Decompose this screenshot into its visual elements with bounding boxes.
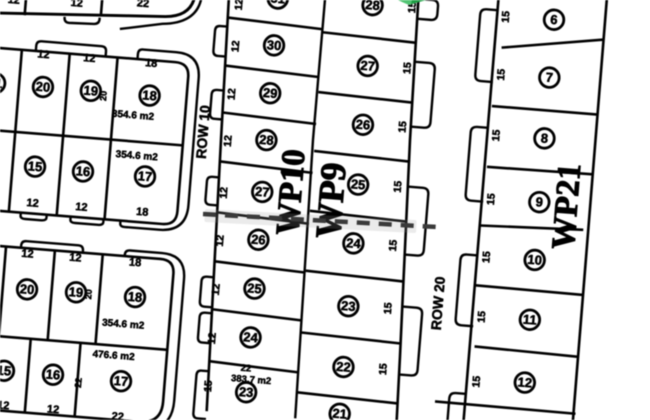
svg-text:19: 19 xyxy=(68,284,84,300)
svg-text:12: 12 xyxy=(210,283,223,296)
svg-text:24: 24 xyxy=(243,329,259,345)
svg-text:15: 15 xyxy=(377,363,390,376)
svg-text:12: 12 xyxy=(229,40,242,53)
svg-text:17: 17 xyxy=(137,168,153,184)
svg-text:23: 23 xyxy=(238,384,254,400)
svg-text:15: 15 xyxy=(387,239,400,252)
svg-text:WP21: WP21 xyxy=(546,162,589,251)
svg-text:29: 29 xyxy=(262,85,278,101)
svg-text:30: 30 xyxy=(266,37,282,53)
svg-text:12: 12 xyxy=(69,252,82,265)
svg-text:18: 18 xyxy=(142,87,158,103)
svg-text:15: 15 xyxy=(500,10,513,23)
svg-text:8: 8 xyxy=(540,130,548,146)
svg-text:7: 7 xyxy=(545,70,553,86)
svg-text:12: 12 xyxy=(26,197,39,210)
svg-text:15: 15 xyxy=(480,251,493,264)
svg-text:26: 26 xyxy=(251,231,267,247)
svg-text:12: 12 xyxy=(47,403,60,416)
svg-text:25: 25 xyxy=(247,280,263,296)
svg-text:18: 18 xyxy=(129,256,142,269)
svg-text:10: 10 xyxy=(527,252,543,268)
svg-text:18: 18 xyxy=(145,57,158,70)
svg-text:27: 27 xyxy=(254,184,270,200)
svg-text:16: 16 xyxy=(75,163,91,179)
svg-text:20: 20 xyxy=(98,90,109,101)
svg-text:12: 12 xyxy=(75,201,88,214)
svg-text:15: 15 xyxy=(392,180,405,193)
svg-text:26: 26 xyxy=(355,117,371,133)
svg-text:20: 20 xyxy=(35,79,51,95)
svg-text:15: 15 xyxy=(475,310,488,323)
svg-text:12: 12 xyxy=(214,234,227,247)
svg-text:22: 22 xyxy=(336,359,352,375)
svg-text:15: 15 xyxy=(485,193,498,206)
svg-text:15: 15 xyxy=(495,68,508,81)
svg-text:22: 22 xyxy=(111,411,124,420)
svg-text:12: 12 xyxy=(233,0,246,11)
svg-text:24: 24 xyxy=(346,235,362,251)
svg-text:12: 12 xyxy=(7,0,20,7)
svg-text:12: 12 xyxy=(222,135,235,148)
svg-text:12: 12 xyxy=(218,186,231,199)
svg-text:23: 23 xyxy=(341,298,357,314)
svg-text:25: 25 xyxy=(350,176,366,192)
svg-text:12: 12 xyxy=(0,399,10,412)
svg-text:15: 15 xyxy=(202,380,215,393)
svg-text:17: 17 xyxy=(113,373,129,389)
svg-text:22: 22 xyxy=(136,0,149,10)
svg-text:12: 12 xyxy=(37,48,50,61)
svg-text:21: 21 xyxy=(332,406,348,420)
svg-text:16: 16 xyxy=(45,366,61,382)
svg-text:28: 28 xyxy=(259,132,275,148)
svg-text:15: 15 xyxy=(490,129,503,142)
svg-text:15: 15 xyxy=(382,302,395,315)
svg-text:12: 12 xyxy=(226,88,239,101)
svg-text:27: 27 xyxy=(360,58,376,74)
svg-text:28: 28 xyxy=(365,0,381,13)
svg-text:11: 11 xyxy=(522,312,537,328)
svg-text:20: 20 xyxy=(83,289,94,300)
svg-text:12: 12 xyxy=(83,52,96,65)
svg-text:15: 15 xyxy=(396,121,409,134)
svg-text:9: 9 xyxy=(535,194,543,210)
svg-text:15: 15 xyxy=(401,62,414,75)
svg-text:22: 22 xyxy=(240,363,251,375)
svg-text:12: 12 xyxy=(517,374,533,390)
svg-text:15: 15 xyxy=(470,375,483,388)
svg-text:18: 18 xyxy=(136,206,149,219)
svg-text:20: 20 xyxy=(19,281,35,297)
svg-text:22: 22 xyxy=(73,377,84,388)
svg-text:15: 15 xyxy=(27,158,43,174)
svg-text:15: 15 xyxy=(0,363,12,379)
svg-text:18: 18 xyxy=(127,289,143,305)
svg-text:19: 19 xyxy=(83,83,99,99)
svg-text:12: 12 xyxy=(21,248,34,261)
svg-text:12: 12 xyxy=(70,0,83,10)
svg-text:6: 6 xyxy=(550,12,558,28)
